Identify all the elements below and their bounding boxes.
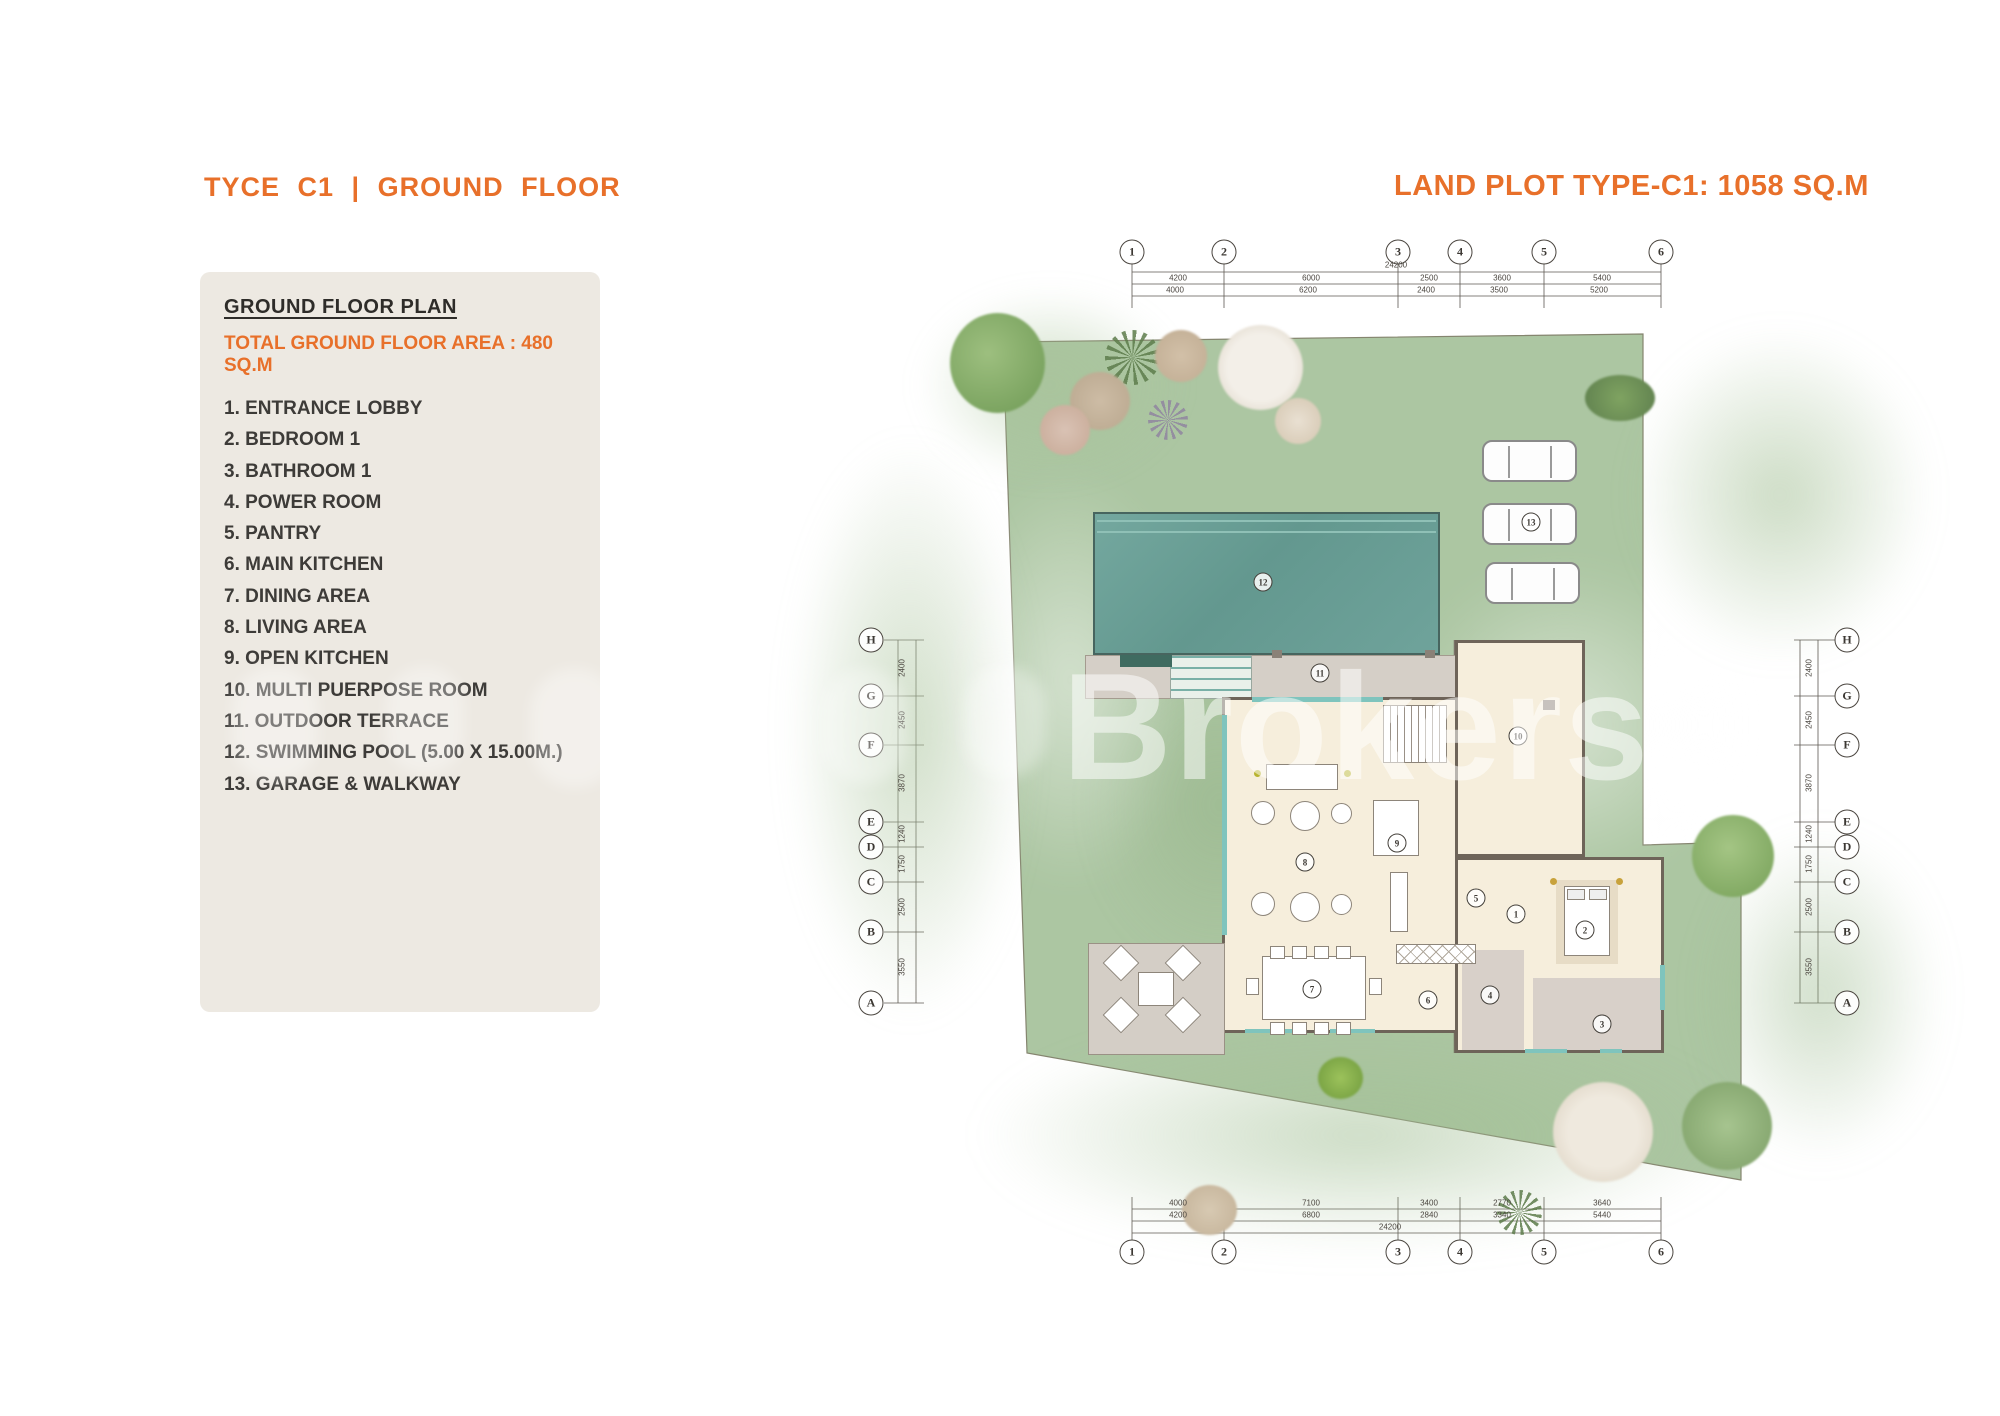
legend-item: 3. BATHROOM 1 bbox=[224, 456, 600, 487]
dimension: 3400 bbox=[1420, 1199, 1438, 1208]
pillow bbox=[1567, 889, 1585, 900]
bedroom-window bbox=[1660, 965, 1665, 1010]
dimension: 2840 bbox=[1420, 1211, 1438, 1220]
grid-row-bubble: A bbox=[1835, 991, 1860, 1016]
terrace-table bbox=[1138, 972, 1174, 1006]
tree bbox=[1585, 375, 1655, 421]
dimension: 2450 bbox=[898, 711, 907, 729]
dimension: 2500 bbox=[1420, 274, 1438, 283]
grid-column-bubble: 6 bbox=[1649, 240, 1674, 265]
dimension: 1240 bbox=[1805, 825, 1814, 843]
dimension: 1750 bbox=[1805, 855, 1814, 873]
watermark: Brokers bbox=[1062, 640, 1651, 815]
legend-item: 10. MULTI PUERPOSE ROOM bbox=[224, 675, 600, 706]
room-label-living-area: 8 bbox=[1296, 853, 1315, 872]
dimension: 4000 bbox=[1166, 286, 1184, 295]
grid-column-bubble: 6 bbox=[1649, 1240, 1674, 1265]
dimension: 3500 bbox=[1490, 286, 1508, 295]
dimension: 6000 bbox=[1302, 274, 1320, 283]
palm-tree bbox=[1148, 400, 1188, 440]
room-label-garage-walkway: 13 bbox=[1522, 513, 1541, 532]
car-rear-window bbox=[1550, 509, 1552, 541]
grid-column-bubble: 3 bbox=[1386, 1240, 1411, 1265]
grid-row-bubble: D bbox=[859, 835, 884, 860]
bedside-lamp bbox=[1616, 878, 1623, 885]
dimension: 2770 bbox=[1493, 1199, 1511, 1208]
grid-row-bubble: H bbox=[859, 628, 884, 653]
dining-chair bbox=[1246, 978, 1259, 995]
dimension: 5200 bbox=[1590, 286, 1608, 295]
armchair bbox=[1331, 894, 1352, 915]
armchair bbox=[1290, 892, 1320, 922]
car-rear-window bbox=[1550, 446, 1552, 478]
grid-column-bubble: 4 bbox=[1448, 1240, 1473, 1265]
dimension: 2500 bbox=[898, 898, 907, 916]
dining-chair bbox=[1292, 946, 1307, 959]
dimension: 3340 bbox=[1493, 1211, 1511, 1220]
dimension: 1240 bbox=[898, 825, 907, 843]
dimension: 6200 bbox=[1299, 286, 1317, 295]
legend-item: 11. OUTDOOR TERRACE bbox=[224, 706, 600, 737]
watercolor-wash bbox=[790, 440, 1030, 1020]
watercolor-wash bbox=[1630, 330, 1930, 660]
grid-column-bubble: 4 bbox=[1448, 240, 1473, 265]
dimension: 3870 bbox=[1805, 774, 1814, 792]
grid-row-bubble: F bbox=[1835, 733, 1860, 758]
dimension: 4200 bbox=[1169, 274, 1187, 283]
grid-row-bubble: C bbox=[859, 870, 884, 895]
tree bbox=[1318, 1057, 1363, 1099]
grid-column-bubble: 1 bbox=[1120, 240, 1145, 265]
legend-item: 6. MAIN KITCHEN bbox=[224, 549, 600, 580]
dining-chair bbox=[1369, 978, 1382, 995]
room-label-main-kitchen: 6 bbox=[1419, 991, 1438, 1010]
grid-row-bubble: A bbox=[859, 991, 884, 1016]
room-label-open-kitchen: 9 bbox=[1388, 834, 1407, 853]
dimension: 2400 bbox=[898, 659, 907, 677]
bathroom-fill bbox=[1533, 978, 1661, 1050]
legend-total-area: TOTAL GROUND FLOOR AREA : 480 SQ.M bbox=[224, 333, 600, 377]
tree bbox=[1682, 1082, 1772, 1170]
room-label-swimming-pool: 12 bbox=[1254, 573, 1273, 592]
room-label-bedroom-1: 2 bbox=[1576, 921, 1595, 940]
tree bbox=[1275, 398, 1321, 444]
grid-row-bubble: H bbox=[1835, 628, 1860, 653]
tree bbox=[1155, 330, 1207, 382]
car-windshield bbox=[1508, 509, 1510, 541]
room-label-entrance-lobby: 1 bbox=[1507, 905, 1526, 924]
dining-chair bbox=[1292, 1022, 1307, 1035]
tree bbox=[1692, 815, 1774, 897]
dining-chair bbox=[1314, 946, 1329, 959]
dimension: 3870 bbox=[898, 774, 907, 792]
dimension: 7100 bbox=[1302, 1199, 1320, 1208]
dimension: 3640 bbox=[1593, 1199, 1611, 1208]
page-title: TYCE C1 | GROUND FLOOR bbox=[204, 172, 621, 203]
car bbox=[1485, 562, 1580, 604]
room-label-pantry: 5 bbox=[1467, 889, 1486, 908]
car-windshield bbox=[1511, 568, 1513, 600]
bedside-lamp bbox=[1550, 878, 1557, 885]
car-windshield bbox=[1508, 446, 1510, 478]
armchair bbox=[1251, 892, 1275, 916]
tree bbox=[1182, 1185, 1237, 1235]
dimension: 5400 bbox=[1593, 274, 1611, 283]
grid-row-bubble: C bbox=[1835, 870, 1860, 895]
dimension: 2400 bbox=[1417, 286, 1435, 295]
pillow bbox=[1589, 889, 1607, 900]
grid-row-bubble: G bbox=[859, 684, 884, 709]
grid-column-bubble: 2 bbox=[1212, 240, 1237, 265]
tree bbox=[1040, 405, 1090, 455]
legend-item: 4. POWER ROOM bbox=[224, 487, 600, 518]
legend-item: 12. SWIMMING POOL (5.00 X 15.00M.) bbox=[224, 737, 600, 768]
dining-chair bbox=[1336, 1022, 1351, 1035]
grid-column-bubble: 2 bbox=[1212, 1240, 1237, 1265]
dining-chair bbox=[1314, 1022, 1329, 1035]
tree bbox=[1218, 325, 1303, 410]
grid-row-bubble: E bbox=[1835, 810, 1860, 835]
legend-item: 9. OPEN KITCHEN bbox=[224, 643, 600, 674]
pool-overflow-lines bbox=[1097, 520, 1436, 533]
dimension: 6800 bbox=[1302, 1211, 1320, 1220]
dimension: 5440 bbox=[1593, 1211, 1611, 1220]
dimension: 1750 bbox=[898, 855, 907, 873]
legend-item: 5. PANTRY bbox=[224, 518, 600, 549]
dimension: 2450 bbox=[1805, 711, 1814, 729]
legend-item: 8. LIVING AREA bbox=[224, 612, 600, 643]
grid-row-bubble: D bbox=[1835, 835, 1860, 860]
dimension: 2500 bbox=[1805, 898, 1814, 916]
legend-item: 13. GARAGE & WALKWAY bbox=[224, 769, 600, 800]
grid-row-bubble: E bbox=[859, 810, 884, 835]
dining-chair bbox=[1336, 946, 1351, 959]
dimension: 2400 bbox=[1805, 659, 1814, 677]
grid-row-bubble: B bbox=[1835, 920, 1860, 945]
car-rear-window bbox=[1553, 568, 1555, 600]
dimension: 3550 bbox=[898, 958, 907, 976]
kitchen-cabinets bbox=[1396, 944, 1476, 964]
grid-row-bubble: B bbox=[859, 920, 884, 945]
watermark-fragment bbox=[90, 668, 160, 768]
grid-row-bubble: G bbox=[1835, 684, 1860, 709]
glass-wall bbox=[1600, 1049, 1622, 1053]
glass-wall bbox=[1525, 1049, 1567, 1053]
car bbox=[1482, 440, 1577, 482]
dining-chair bbox=[1270, 1022, 1285, 1035]
room-label-power-room: 4 bbox=[1481, 986, 1500, 1005]
tree bbox=[950, 313, 1045, 413]
room-label-dining-area: 7 bbox=[1303, 980, 1322, 999]
legend-item: 2. BEDROOM 1 bbox=[224, 424, 600, 455]
dimension: 4000 bbox=[1169, 1199, 1187, 1208]
legend-panel: GROUND FLOOR PLAN TOTAL GROUND FLOOR ARE… bbox=[200, 272, 600, 1012]
legend-item: 1. ENTRANCE LOBBY bbox=[224, 393, 600, 424]
floor-plan-sheet: TYCE C1 | GROUND FLOOR LAND PLOT TYPE-C1… bbox=[0, 0, 2000, 1416]
dimension: 3550 bbox=[1805, 958, 1814, 976]
land-plot-title: LAND PLOT TYPE-C1: 1058 SQ.M bbox=[1394, 170, 1869, 203]
grid-column-bubble: 5 bbox=[1532, 1240, 1557, 1265]
legend-heading: GROUND FLOOR PLAN bbox=[224, 296, 600, 319]
kitchen-counter bbox=[1390, 872, 1408, 932]
dining-chair bbox=[1270, 946, 1285, 959]
tree bbox=[1553, 1082, 1653, 1182]
dimension-total: 24200 bbox=[1379, 1223, 1401, 1232]
room-label-bathroom-1: 3 bbox=[1593, 1015, 1612, 1034]
grid-column-bubble: 1 bbox=[1120, 1240, 1145, 1265]
dimension: 3600 bbox=[1493, 274, 1511, 283]
grid-row-bubble: F bbox=[859, 733, 884, 758]
grid-column-bubble: 5 bbox=[1532, 240, 1557, 265]
dimension-total: 24200 bbox=[1385, 261, 1407, 270]
dimension: 4200 bbox=[1169, 1211, 1187, 1220]
legend-item: 7. DINING AREA bbox=[224, 581, 600, 612]
